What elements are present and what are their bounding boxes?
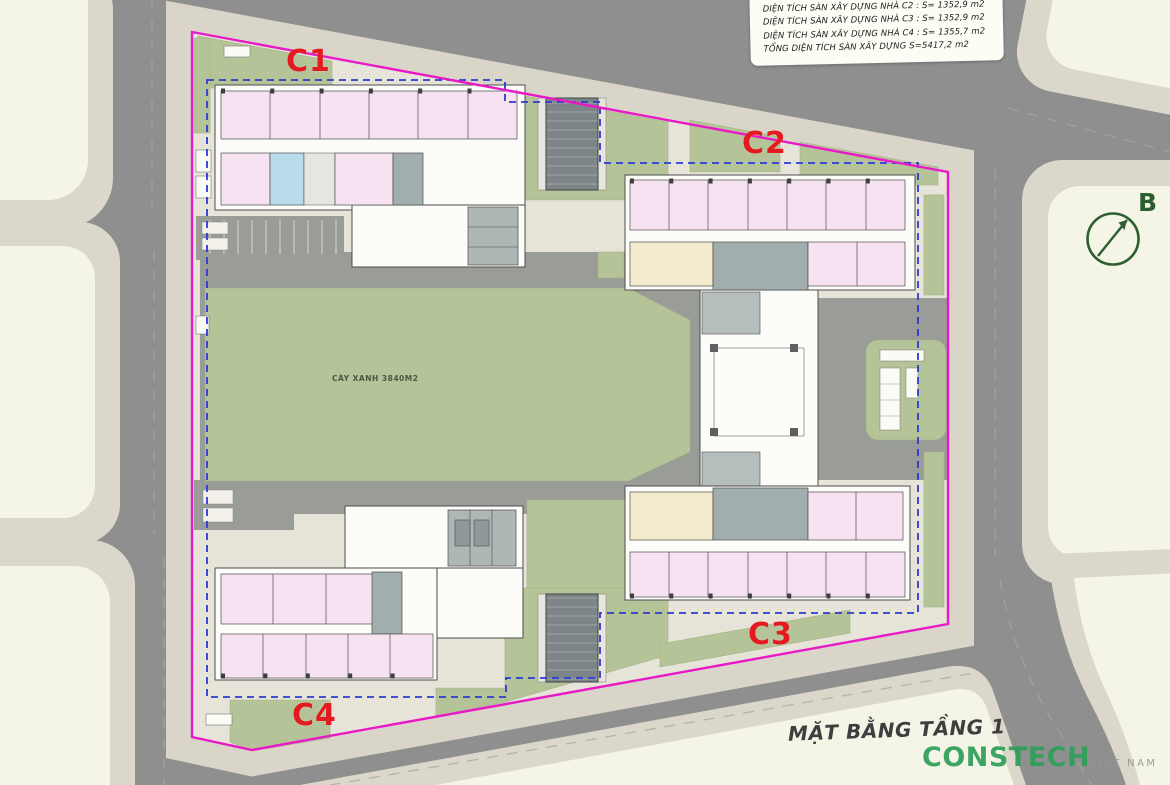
building-c3	[625, 486, 910, 600]
parcel-top-left	[0, 0, 113, 228]
parcel-bottom-left	[0, 540, 135, 785]
area-legend: DIỆN TÍCH SÀN XÂY DỰNG NHÀ C2 : S= 1352,…	[749, 0, 1004, 65]
compass: B	[1085, 192, 1170, 277]
ramp-top	[538, 98, 606, 190]
label-building-c3: C3	[748, 617, 793, 652]
label-building-c1: C1	[286, 44, 331, 79]
logo-text: CONSTECH	[922, 742, 1090, 773]
site-plan-drawing	[0, 0, 1170, 785]
lawn-area-label: CÂY XANH 3840M2	[332, 374, 418, 383]
central-lawn	[205, 288, 690, 481]
ramp-bottom	[538, 594, 606, 682]
constech-logo: CONSTECH VIET NAM	[922, 742, 1158, 773]
logo-subtext: VIET NAM	[1089, 758, 1157, 769]
compass-north-letter: B	[1138, 188, 1157, 217]
label-building-c2: C2	[742, 126, 787, 161]
parcel-left-middle	[0, 222, 120, 544]
island-structures	[866, 340, 946, 440]
north-arrow-icon	[1085, 192, 1170, 277]
label-building-c4: C4	[292, 698, 337, 733]
site-plan-canvas: DIỆN TÍCH SÀN XÂY DỰNG NHÀ C2 : S= 1352,…	[0, 0, 1170, 785]
